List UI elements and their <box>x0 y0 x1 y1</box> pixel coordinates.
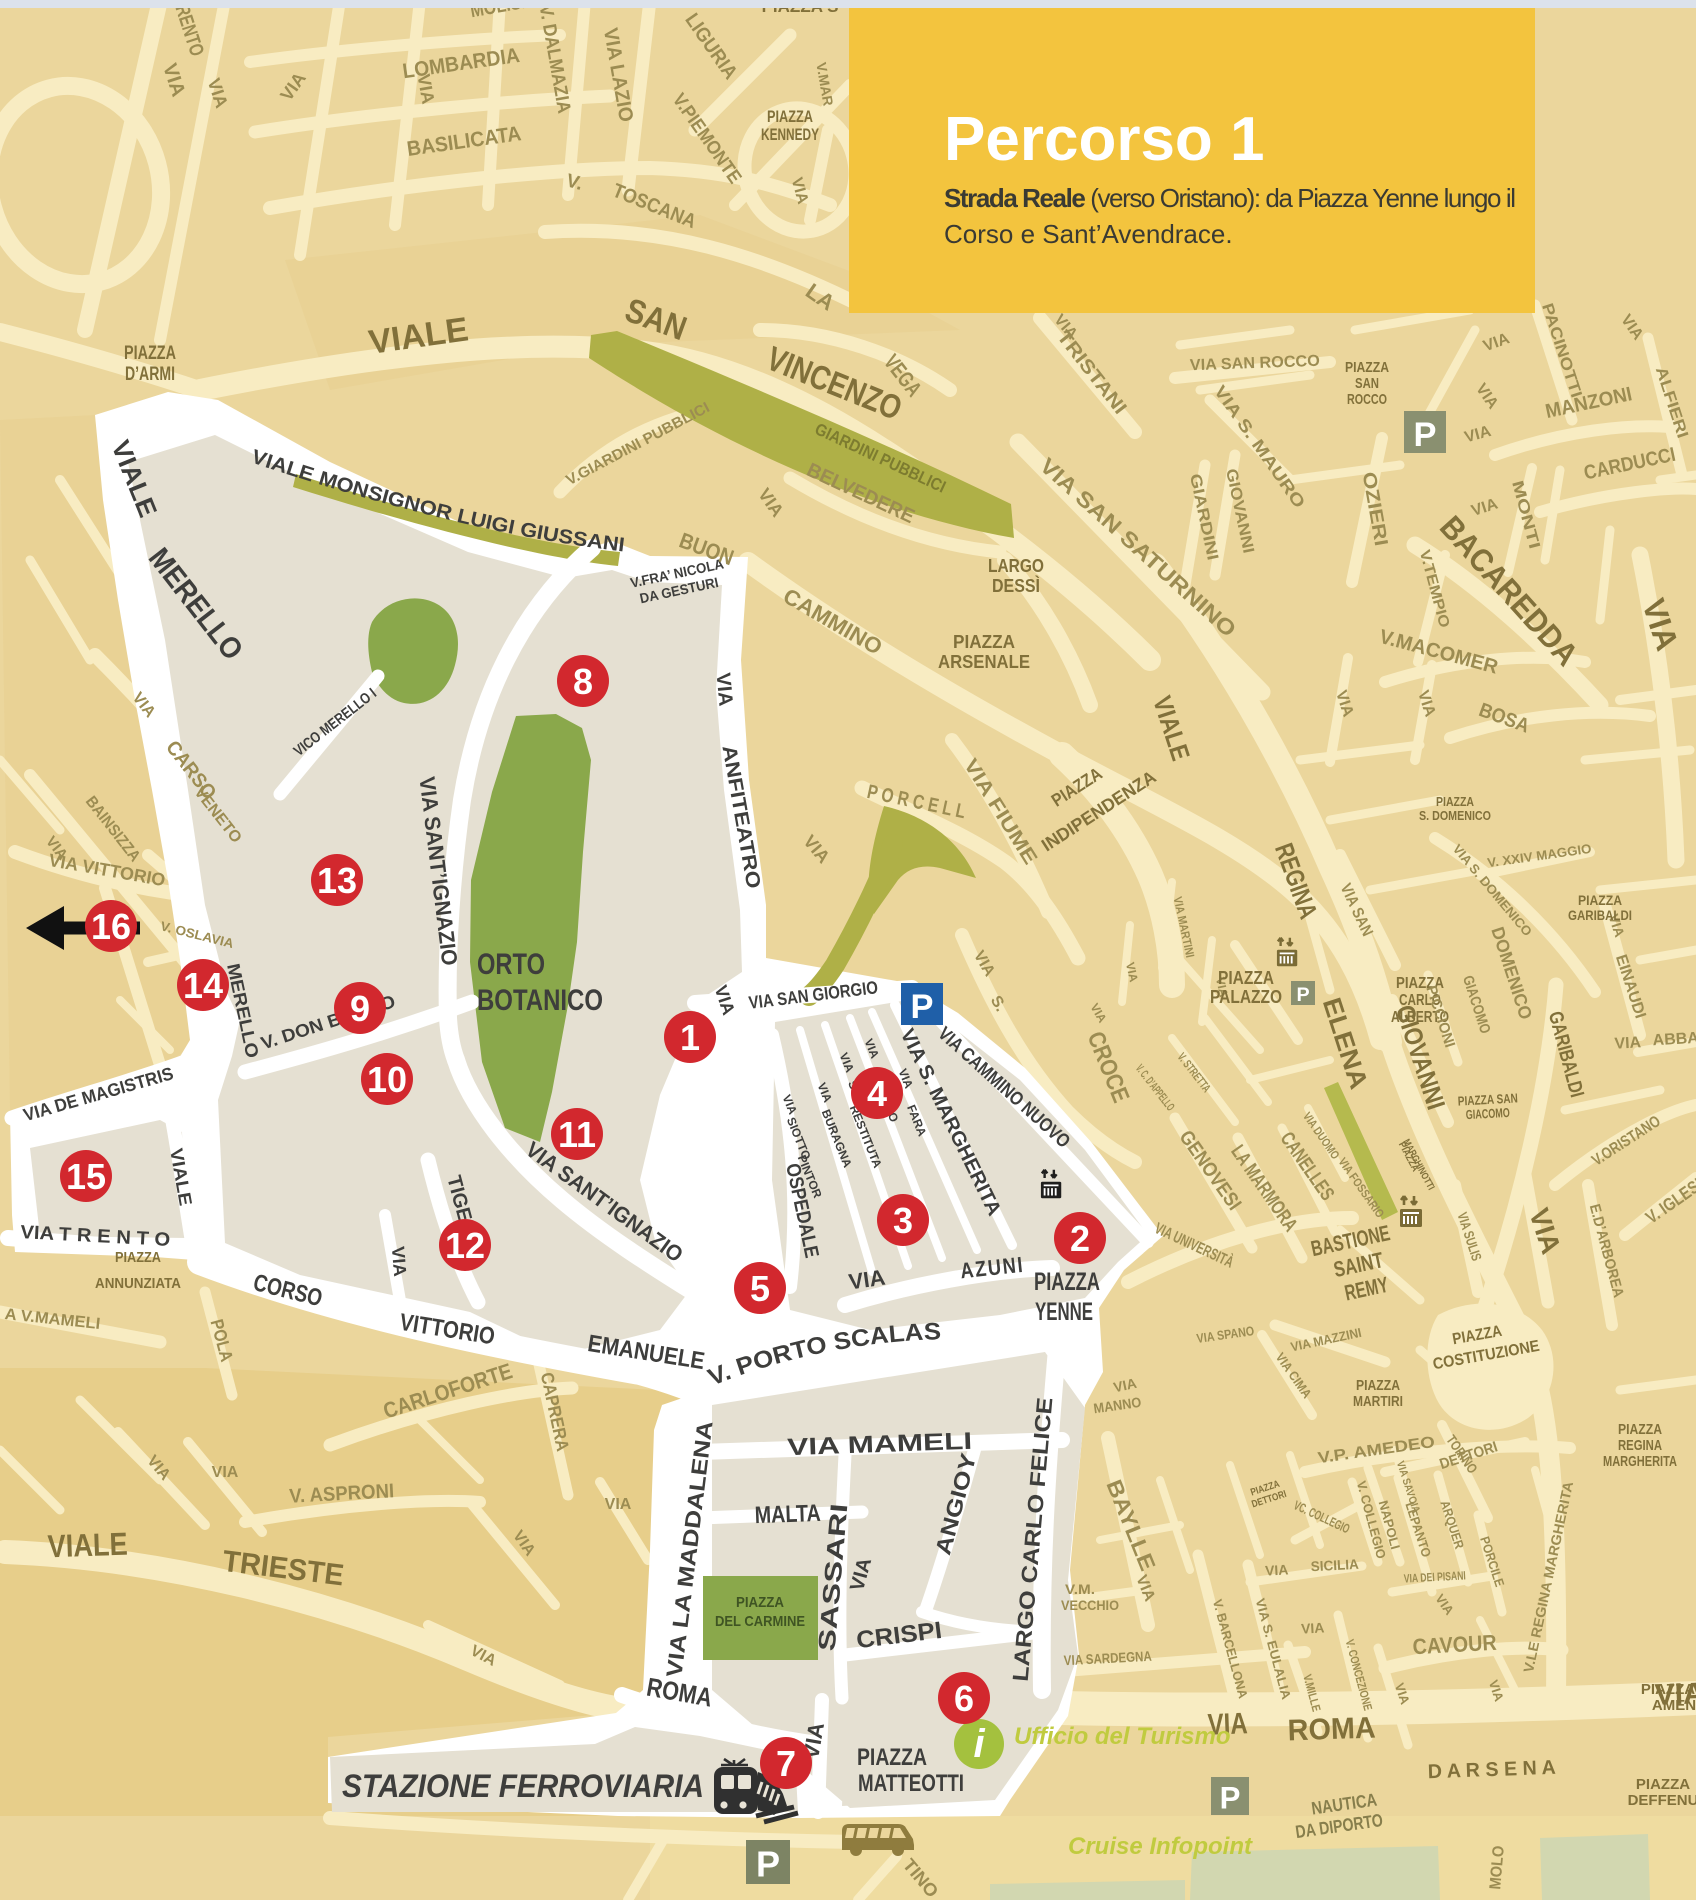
svg-text:REGINA: REGINA <box>1618 1437 1662 1454</box>
svg-text:12: 12 <box>445 1225 485 1266</box>
svg-text:2: 2 <box>1070 1218 1090 1259</box>
svg-text:KENNEDY: KENNEDY <box>761 125 819 144</box>
svg-text:i: i <box>973 1722 985 1766</box>
svg-text:P: P <box>911 988 934 1026</box>
svg-text:VIA: VIA <box>1614 1034 1642 1052</box>
svg-text:ANNUNZIATA: ANNUNZIATA <box>95 1275 181 1292</box>
svg-text:14: 14 <box>183 965 223 1006</box>
svg-text:PIAZZA: PIAZZA <box>1636 1776 1690 1793</box>
svg-text:VECCHIO: VECCHIO <box>1061 1597 1119 1613</box>
svg-text:V.M.: V.M. <box>1065 1581 1095 1597</box>
svg-text:PIAZZA: PIAZZA <box>857 1744 927 1771</box>
svg-text:STAZIONE FERROVIARIA: STAZIONE FERROVIARIA <box>342 1768 704 1804</box>
svg-text:ARSENALE: ARSENALE <box>938 652 1030 672</box>
svg-text:MATTEOTTI: MATTEOTTI <box>858 1770 964 1797</box>
svg-text:P: P <box>756 1844 780 1885</box>
svg-text:VIA: VIA <box>847 1265 887 1295</box>
svg-text:DESSÌ: DESSÌ <box>992 575 1040 596</box>
svg-text:4: 4 <box>867 1073 887 1114</box>
svg-text:D A R S E N A: D A R S E N A <box>1427 1757 1556 1783</box>
svg-text:VIA: VIA <box>388 1246 411 1278</box>
svg-text:PIAZZA: PIAZZA <box>115 1249 161 1266</box>
svg-text:MALTA: MALTA <box>754 1500 821 1529</box>
svg-text:YENNE: YENNE <box>1035 1298 1093 1326</box>
svg-text:VIA: VIA <box>1301 1619 1325 1636</box>
svg-text:PIAZZA: PIAZZA <box>124 343 176 364</box>
svg-text:PIAZZA: PIAZZA <box>1034 1268 1100 1296</box>
svg-text:MARGHERITA: MARGHERITA <box>1603 1453 1677 1470</box>
svg-text:CAVOUR: CAVOUR <box>1412 1630 1497 1659</box>
svg-text:ROCCO: ROCCO <box>1347 391 1387 408</box>
svg-text:LARGO: LARGO <box>988 556 1044 576</box>
svg-text:11: 11 <box>558 1114 596 1155</box>
svg-text:16: 16 <box>91 906 131 947</box>
svg-text:SICILIA: SICILIA <box>1310 1556 1359 1574</box>
svg-text:P: P <box>1414 416 1437 454</box>
svg-text:S. DOMENICO: S. DOMENICO <box>1419 808 1491 823</box>
svg-text:PIAZZA: PIAZZA <box>767 107 813 126</box>
svg-text:P: P <box>1220 1781 1241 1816</box>
svg-text:Strada Reale (verso Oristano):: Strada Reale (verso Oristano): da Piazza… <box>944 183 1516 213</box>
svg-text:3: 3 <box>893 1200 913 1241</box>
svg-text:Ufficio del Turismo: Ufficio del Turismo <box>1014 1723 1230 1750</box>
svg-text:5: 5 <box>750 1268 770 1309</box>
svg-text:PIAZZA: PIAZZA <box>1218 968 1274 988</box>
svg-text:AMEN: AMEN <box>1652 1697 1696 1714</box>
svg-text:GARIBALDI: GARIBALDI <box>1568 907 1632 923</box>
svg-text:PIAZZA: PIAZZA <box>953 632 1015 652</box>
svg-text:VIALE: VIALE <box>47 1526 128 1565</box>
svg-text:GIACOMO: GIACOMO <box>1465 1105 1510 1122</box>
svg-text:SAN: SAN <box>1355 375 1379 392</box>
svg-text:ROMA: ROMA <box>1287 1711 1376 1747</box>
svg-text:VIA: VIA <box>605 1496 632 1513</box>
svg-text:10: 10 <box>367 1059 407 1100</box>
svg-text:PIAZZA: PIAZZA <box>736 1594 784 1611</box>
svg-text:15: 15 <box>66 1156 106 1197</box>
svg-text:PIAZZA: PIAZZA <box>1578 892 1622 908</box>
svg-text:9: 9 <box>350 988 370 1029</box>
svg-text:D’ARMI: D’ARMI <box>125 364 175 385</box>
svg-text:8: 8 <box>573 661 593 702</box>
svg-text:ORTO: ORTO <box>477 948 545 981</box>
svg-text:1: 1 <box>680 1017 700 1058</box>
svg-text:PIAZZA: PIAZZA <box>1356 1377 1400 1394</box>
svg-text:MARTIRI: MARTIRI <box>1353 1393 1403 1410</box>
svg-text:Corso e Sant’Avendrace.: Corso e Sant’Avendrace. <box>944 219 1233 249</box>
svg-text:Cruise Infopoint: Cruise Infopoint <box>1068 1833 1253 1860</box>
svg-text:Percorso 1: Percorso 1 <box>944 105 1265 174</box>
svg-text:DEL CARMINE: DEL CARMINE <box>715 1613 805 1630</box>
svg-text:P: P <box>1296 984 1309 1006</box>
svg-text:PIAZZA: PIAZZA <box>1641 1681 1695 1698</box>
svg-text:PIAZZA: PIAZZA <box>1436 794 1474 809</box>
svg-text:ABBA: ABBA <box>1652 1030 1696 1049</box>
svg-text:7: 7 <box>776 1743 796 1784</box>
svg-text:BOTANICO: BOTANICO <box>477 984 603 1017</box>
svg-text:VIA: VIA <box>212 1464 239 1481</box>
svg-text:13: 13 <box>317 860 357 901</box>
svg-text:PIAZZA: PIAZZA <box>1618 1421 1662 1438</box>
svg-text:VIA: VIA <box>1265 1561 1289 1578</box>
svg-text:DEFFENU: DEFFENU <box>1628 1792 1696 1809</box>
svg-text:VIA: VIA <box>712 672 737 707</box>
svg-text:6: 6 <box>954 1678 974 1719</box>
svg-text:PIAZZA: PIAZZA <box>1345 359 1389 376</box>
svg-text:PALAZZO: PALAZZO <box>1210 987 1282 1007</box>
